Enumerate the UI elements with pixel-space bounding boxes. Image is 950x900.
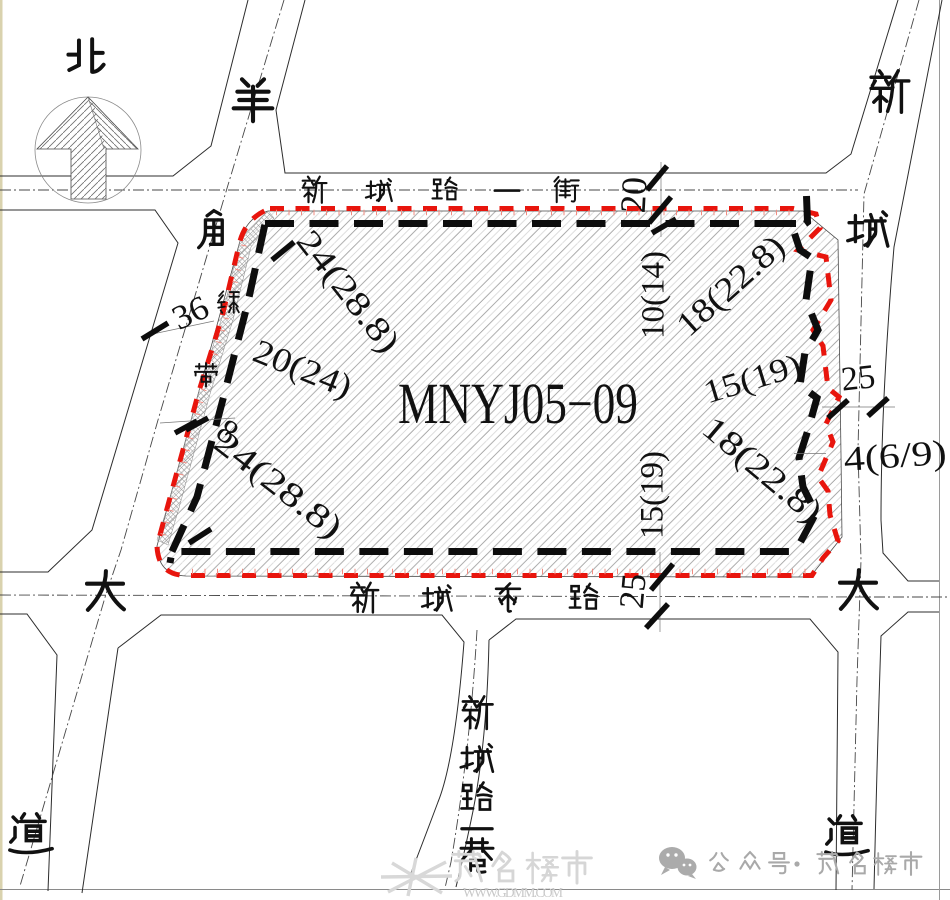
- svg-text:15(19): 15(19): [635, 451, 671, 539]
- svg-text:4(6/9): 4(6/9): [842, 433, 947, 479]
- svg-text:20: 20: [613, 176, 655, 214]
- svg-text:25: 25: [839, 358, 877, 398]
- svg-text:MNYJ05−09: MNYJ05−09: [398, 371, 638, 436]
- svg-text:25: 25: [612, 572, 654, 610]
- svg-text:10(14): 10(14): [636, 251, 672, 339]
- svg-text:WWW.GDMM.COM: WWW.GDMM.COM: [463, 885, 563, 900]
